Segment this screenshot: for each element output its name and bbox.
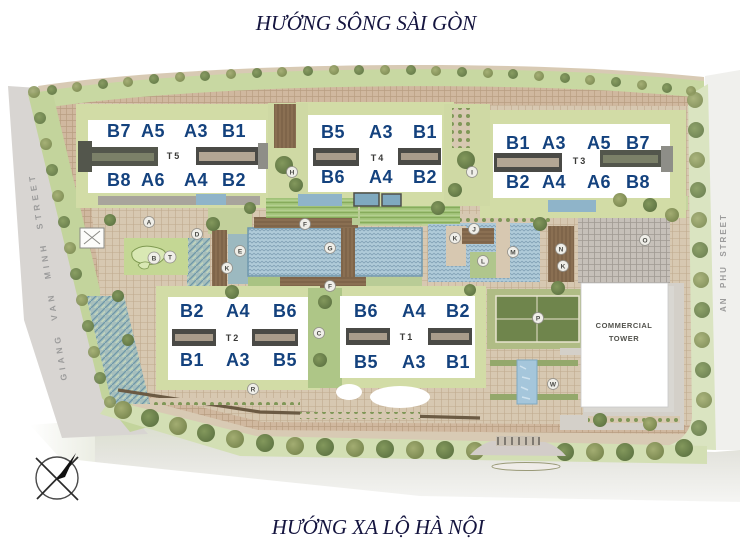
svg-text:K: K	[225, 266, 230, 273]
svg-text:K: K	[561, 264, 566, 271]
svg-text:J: J	[472, 227, 476, 234]
svg-text:A6: A6	[141, 170, 165, 190]
svg-text:A3: A3	[542, 133, 566, 153]
svg-text:A3: A3	[369, 122, 393, 142]
svg-text:HƯỚNG SÔNG SÀI GÒN: HƯỚNG SÔNG SÀI GÒN	[255, 11, 478, 35]
svg-text:B5: B5	[354, 352, 378, 372]
svg-text:B5: B5	[273, 350, 297, 370]
svg-text:P: P	[536, 316, 541, 323]
svg-text:M: M	[510, 250, 515, 257]
svg-text:I: I	[471, 170, 473, 177]
svg-text:B2: B2	[222, 170, 246, 190]
svg-text:B1: B1	[222, 121, 246, 141]
svg-text:B8: B8	[107, 170, 131, 190]
svg-text:B: B	[152, 256, 157, 263]
svg-text:O: O	[642, 238, 647, 245]
svg-text:A6: A6	[587, 172, 611, 192]
svg-text:A4: A4	[226, 301, 250, 321]
svg-text:A5: A5	[141, 121, 165, 141]
svg-text:A3: A3	[226, 350, 250, 370]
svg-text:COMMERCIAL: COMMERCIAL	[596, 321, 653, 330]
svg-text:B2: B2	[506, 172, 530, 192]
svg-text:AN PHU STREET: AN PHU STREET	[719, 213, 728, 312]
svg-text:B1: B1	[506, 133, 530, 153]
svg-text:A3: A3	[184, 121, 208, 141]
svg-text:B6: B6	[321, 167, 345, 187]
svg-text:H: H	[290, 170, 295, 177]
svg-text:T4: T4	[371, 153, 386, 163]
svg-text:B5: B5	[321, 122, 345, 142]
svg-text:B7: B7	[107, 121, 131, 141]
svg-text:A3: A3	[402, 352, 426, 372]
svg-text:B1: B1	[180, 350, 204, 370]
svg-text:HƯỚNG XA LỘ HÀ NỘI: HƯỚNG XA LỘ HÀ NỘI	[271, 515, 486, 539]
svg-text:A4: A4	[184, 170, 208, 190]
svg-text:TOWER: TOWER	[609, 334, 639, 343]
svg-text:B2: B2	[446, 301, 470, 321]
svg-text:E: E	[238, 249, 243, 256]
svg-text:L: L	[481, 259, 485, 266]
svg-text:T5: T5	[167, 151, 182, 161]
svg-text:K: K	[453, 236, 458, 243]
svg-text:R: R	[251, 387, 256, 394]
svg-text:W: W	[550, 382, 557, 389]
svg-text:N: N	[559, 247, 564, 254]
svg-text:F: F	[328, 284, 332, 291]
svg-text:T3: T3	[573, 156, 588, 166]
svg-text:B6: B6	[273, 301, 297, 321]
svg-text:B2: B2	[180, 301, 204, 321]
svg-text:A4: A4	[402, 301, 426, 321]
svg-text:B1: B1	[413, 122, 437, 142]
svg-text:B2: B2	[413, 167, 437, 187]
svg-text:F: F	[303, 222, 307, 229]
svg-text:B8: B8	[626, 172, 650, 192]
svg-text:T2: T2	[226, 333, 241, 343]
svg-text:B7: B7	[626, 133, 650, 153]
svg-text:A5: A5	[587, 133, 611, 153]
svg-text:A4: A4	[369, 167, 393, 187]
svg-text:A: A	[147, 220, 152, 227]
svg-text:D: D	[195, 232, 200, 239]
svg-text:B6: B6	[354, 301, 378, 321]
svg-text:T1: T1	[400, 332, 415, 342]
svg-text:A4: A4	[542, 172, 566, 192]
svg-text:T: T	[168, 255, 172, 262]
svg-text:C: C	[317, 331, 322, 338]
svg-text:B1: B1	[446, 352, 470, 372]
svg-text:G: G	[327, 246, 332, 253]
